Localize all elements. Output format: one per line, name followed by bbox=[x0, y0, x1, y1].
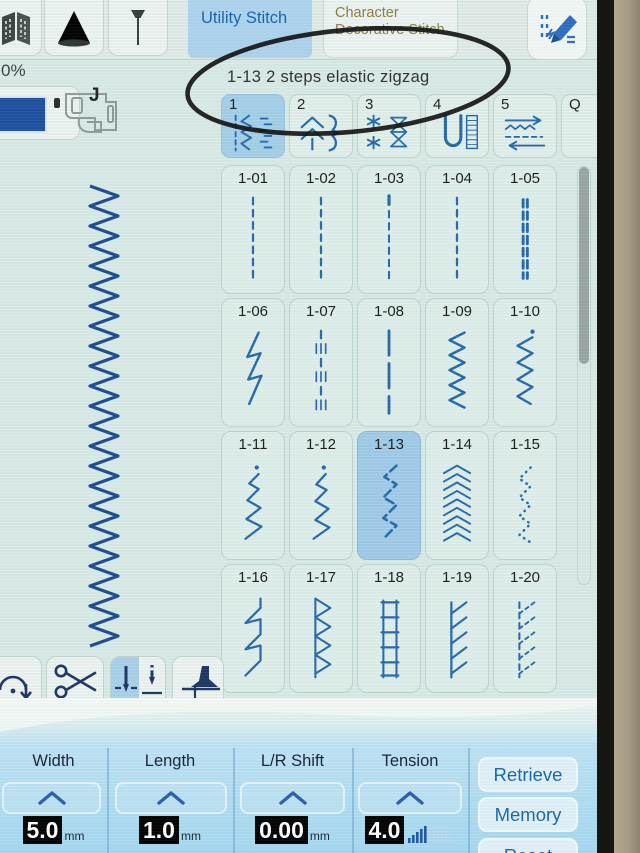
bobbin-thread-icon bbox=[0, 96, 47, 133]
stitch-cell-1-20[interactable]: 1-20 bbox=[493, 564, 557, 693]
stitch-preview-zigzag bbox=[82, 182, 124, 650]
dashed-straight-top-glyph-icon bbox=[359, 190, 419, 288]
stitch-cell-1-14[interactable]: 1-14 bbox=[425, 431, 489, 560]
column-divider bbox=[468, 748, 470, 853]
width-increase-button[interactable] bbox=[2, 782, 101, 814]
lr-shift-increase-button[interactable] bbox=[240, 782, 345, 814]
screen-bezel bbox=[597, 0, 614, 853]
length-increase-button[interactable] bbox=[115, 782, 227, 814]
thread-cone-icon bbox=[52, 7, 96, 49]
stitch-cell-1-15[interactable]: 1-15 bbox=[493, 431, 557, 560]
wave-decoration bbox=[0, 698, 597, 742]
memory-button[interactable]: Memory bbox=[478, 797, 578, 832]
stitch-number: 1-06 bbox=[222, 303, 284, 320]
stitch-cell-1-03[interactable]: 1-03 bbox=[357, 165, 421, 294]
elastic-zigzag-dot2-glyph-icon bbox=[291, 456, 351, 554]
width-setting-column: Width 5.0mm bbox=[0, 742, 107, 853]
retrieve-button[interactable]: Retrieve bbox=[478, 757, 578, 792]
zigzag-glyph-icon bbox=[427, 323, 487, 421]
decorative-stitches-icon bbox=[294, 111, 348, 155]
stitch-cell-1-06[interactable]: 1-06 bbox=[221, 298, 285, 427]
fabric-guide-button[interactable] bbox=[0, 0, 42, 56]
tab-character-decorative-stitch[interactable]: Character Decorative Stitch bbox=[323, 0, 458, 58]
stitch-category-tab-4[interactable]: 4 bbox=[425, 94, 489, 158]
lr-shift-value: 0.00 bbox=[255, 816, 308, 844]
blind-hem-glyph-icon bbox=[223, 589, 283, 687]
stitch-number: 1-12 bbox=[290, 436, 352, 453]
dashed-straight-glyph-icon bbox=[291, 190, 351, 288]
grid-scrollbar[interactable] bbox=[577, 166, 591, 585]
stretch-stitch-glyph-icon bbox=[223, 323, 283, 421]
stitch-number: 1-09 bbox=[426, 303, 488, 320]
stitch-number: 1-01 bbox=[222, 170, 284, 187]
stitch-cell-1-13[interactable]: 1-13 bbox=[357, 431, 421, 560]
stitch-number: 1-19 bbox=[426, 569, 488, 586]
triple-straight-glyph-icon bbox=[495, 190, 555, 288]
two-step-elastic-zigzag-glyph-icon bbox=[359, 456, 419, 554]
stitch-number: 1-03 bbox=[358, 170, 420, 187]
width-value: 5.0 bbox=[23, 816, 63, 844]
stitch-cell-1-16[interactable]: 1-16 bbox=[221, 564, 285, 693]
chevron-up-icon bbox=[278, 791, 308, 805]
overcast-ladder-glyph-icon bbox=[359, 589, 419, 687]
stitch-cell-1-05[interactable]: 1-05 bbox=[493, 165, 557, 294]
reset-button[interactable]: Reset bbox=[478, 838, 578, 853]
selected-stitch-status-text: 1-13 2 steps elastic zigzag bbox=[227, 68, 487, 87]
scissors-icon bbox=[51, 661, 99, 703]
tab-utility-stitch[interactable]: Utility Stitch bbox=[188, 0, 312, 58]
overcast-triangles-glyph-icon bbox=[291, 589, 351, 687]
lr-shift-setting-column: L/R Shift 0.00mm bbox=[233, 742, 352, 853]
stitch-category-tab-3[interactable]: 3 bbox=[357, 94, 421, 158]
stitch-cell-1-04[interactable]: 1-04 bbox=[425, 165, 489, 294]
elastic-zigzag-dot-glyph-icon bbox=[223, 456, 283, 554]
tension-increase-button[interactable] bbox=[358, 782, 462, 814]
stitch-number: 1-04 bbox=[426, 170, 488, 187]
stitch-cell-1-08[interactable]: 1-08 bbox=[357, 298, 421, 427]
overcast-diagonal-glyph-icon bbox=[427, 589, 487, 687]
satin-stitches-icon bbox=[362, 111, 416, 155]
stitch-category-tab-2[interactable]: 2 bbox=[289, 94, 353, 158]
chevron-up-icon bbox=[395, 791, 425, 805]
stitch-cell-1-18[interactable]: 1-18 bbox=[357, 564, 421, 693]
lr-shift-unit: mm bbox=[310, 829, 330, 843]
stitch-number: 1-14 bbox=[426, 436, 488, 453]
stitch-edit-button[interactable] bbox=[527, 0, 587, 60]
stitch-cell-1-19[interactable]: 1-19 bbox=[425, 564, 489, 693]
length-unit: mm bbox=[181, 829, 201, 843]
tension-gauge-icon bbox=[407, 824, 455, 844]
stitch-number: 1-16 bbox=[222, 569, 284, 586]
stitch-number: 1-07 bbox=[290, 303, 352, 320]
pin-icon bbox=[118, 5, 158, 49]
width-unit: mm bbox=[64, 829, 84, 843]
tension-setting-column: Tension 4.0 bbox=[352, 742, 468, 853]
dashed-straight-glyph-icon bbox=[427, 190, 487, 288]
stitch-number: 1-18 bbox=[358, 569, 420, 586]
presser-foot-label: J bbox=[89, 85, 100, 107]
stitch-number: 1-10 bbox=[494, 303, 556, 320]
stitch-cell-1-01[interactable]: 1-01 bbox=[221, 165, 285, 294]
stitch-cell-1-10[interactable]: 1-10 bbox=[493, 298, 557, 427]
chevron-up-icon bbox=[37, 791, 67, 805]
stitch-number: 1-11 bbox=[222, 436, 284, 453]
reverse-arrows-icon bbox=[498, 111, 552, 155]
fabric-icon bbox=[0, 9, 36, 49]
tension-label: Tension bbox=[352, 752, 468, 771]
stitch-number: 1-17 bbox=[290, 569, 352, 586]
touchscreen: Utility Stitch Character Decorative Stit… bbox=[0, 0, 597, 853]
dotted-zigzag-glyph-icon bbox=[495, 456, 555, 554]
top-bar: Utility Stitch Character Decorative Stit… bbox=[0, 0, 597, 60]
triple-zigzag-glyph-icon bbox=[427, 456, 487, 554]
grid-scrollbar-thumb[interactable] bbox=[579, 167, 589, 364]
width-label: Width bbox=[0, 752, 107, 771]
quilting-stitches-icon bbox=[566, 111, 597, 155]
chevron-up-icon bbox=[156, 791, 186, 805]
stitch-number: 1-08 bbox=[358, 303, 420, 320]
zigzag-dot-glyph-icon bbox=[495, 323, 555, 421]
zoom-percent-indicator: 0% bbox=[1, 61, 26, 81]
thread-cone-button[interactable] bbox=[44, 0, 104, 56]
basting-glyph-icon bbox=[291, 323, 351, 421]
length-setting-column: Length 1.0mm bbox=[107, 742, 233, 853]
panel-divider-band bbox=[0, 698, 597, 742]
stitch-number: 1-02 bbox=[290, 170, 352, 187]
length-label: Length bbox=[107, 752, 233, 771]
stitch-cell-1-07[interactable]: 1-07 bbox=[289, 298, 353, 427]
stitch-cell-1-02[interactable]: 1-02 bbox=[289, 165, 353, 294]
stitch-number: 1-13 bbox=[358, 436, 420, 453]
pin-button[interactable] bbox=[108, 0, 168, 56]
stitch-category-tab-1[interactable]: 1 bbox=[221, 94, 285, 158]
buttonhole-stitches-icon bbox=[430, 111, 484, 155]
dashed-straight-glyph-icon bbox=[223, 190, 283, 288]
stitch-cell-1-12[interactable]: 1-12 bbox=[289, 431, 353, 560]
stitch-edit-pencil-icon bbox=[534, 5, 580, 51]
long-dash-glyph-icon bbox=[359, 323, 419, 421]
stitch-cell-1-17[interactable]: 1-17 bbox=[289, 564, 353, 693]
stitch-category-tab-5[interactable]: 5 bbox=[493, 94, 557, 158]
stitch-category-tab-q[interactable]: Q bbox=[561, 94, 597, 158]
stitch-number: 1-20 bbox=[494, 569, 556, 586]
tension-value: 4.0 bbox=[365, 816, 405, 844]
overcast-diagonal-dashed-glyph-icon bbox=[495, 589, 555, 687]
sewing-machine-screen-photo: Utility Stitch Character Decorative Stit… bbox=[0, 0, 640, 853]
lr-shift-label: L/R Shift bbox=[233, 752, 352, 771]
stitch-cell-1-11[interactable]: 1-11 bbox=[221, 431, 285, 560]
utility-stitches-icon bbox=[226, 111, 280, 155]
machine-body bbox=[614, 0, 640, 853]
stitch-number: 1-05 bbox=[494, 170, 556, 187]
stitch-number: 1-15 bbox=[494, 436, 556, 453]
length-value: 1.0 bbox=[139, 816, 179, 844]
stitch-cell-1-09[interactable]: 1-09 bbox=[425, 298, 489, 427]
